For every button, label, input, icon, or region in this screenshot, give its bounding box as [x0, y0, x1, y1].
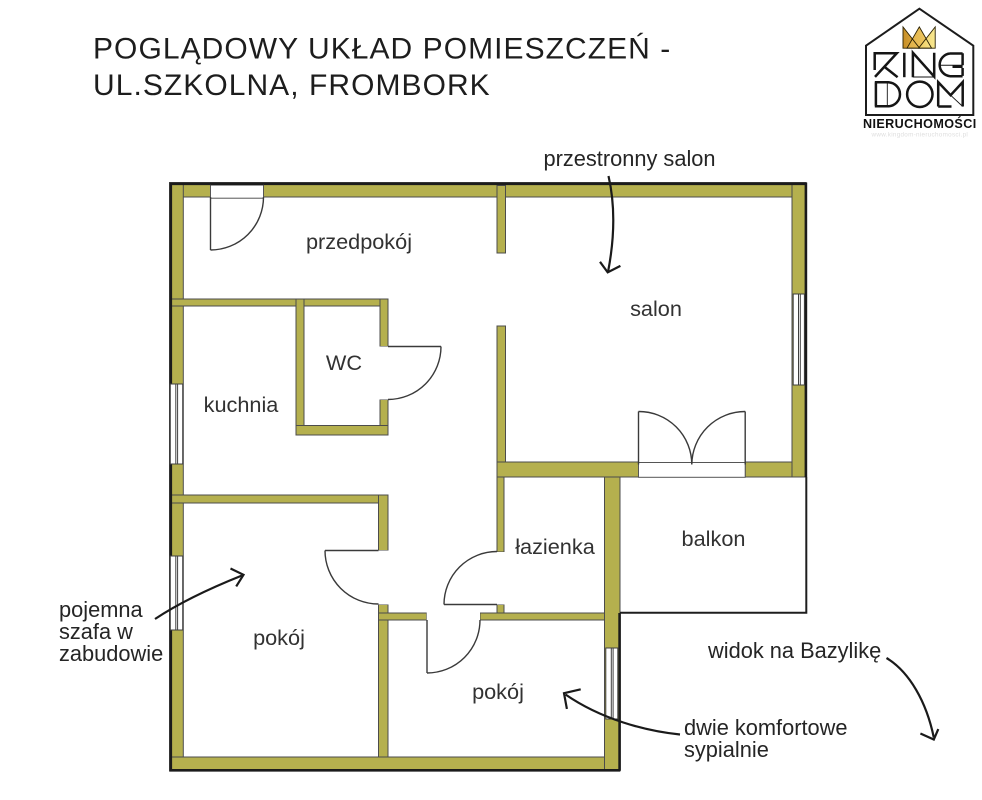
svg-text:balkon: balkon	[682, 526, 746, 551]
svg-text:NIERUCHOMOŚCI: NIERUCHOMOŚCI	[863, 116, 977, 131]
svg-text:pokój: pokój	[472, 679, 524, 704]
svg-text:www.kingdom-nieruchomosci.pl: www.kingdom-nieruchomosci.pl	[871, 132, 969, 139]
svg-text:pokój: pokój	[253, 625, 305, 650]
svg-text:sypialnie: sypialnie	[684, 737, 769, 762]
svg-text:zabudowie: zabudowie	[59, 641, 163, 666]
svg-text:przedpokój: przedpokój	[306, 229, 412, 254]
svg-text:UL.SZKOLNA, FROMBORK: UL.SZKOLNA, FROMBORK	[93, 69, 491, 102]
svg-text:salon: salon	[630, 296, 682, 321]
svg-text:widok na Bazylikę: widok na Bazylikę	[707, 638, 881, 663]
svg-text:przestronny salon: przestronny salon	[544, 146, 716, 171]
svg-text:POGLĄDOWY UKŁAD POMIESZCZEŃ -: POGLĄDOWY UKŁAD POMIESZCZEŃ -	[93, 33, 671, 66]
svg-text:łazienka: łazienka	[515, 534, 596, 559]
svg-text:kuchnia: kuchnia	[204, 392, 280, 417]
svg-text:WC: WC	[326, 350, 362, 375]
